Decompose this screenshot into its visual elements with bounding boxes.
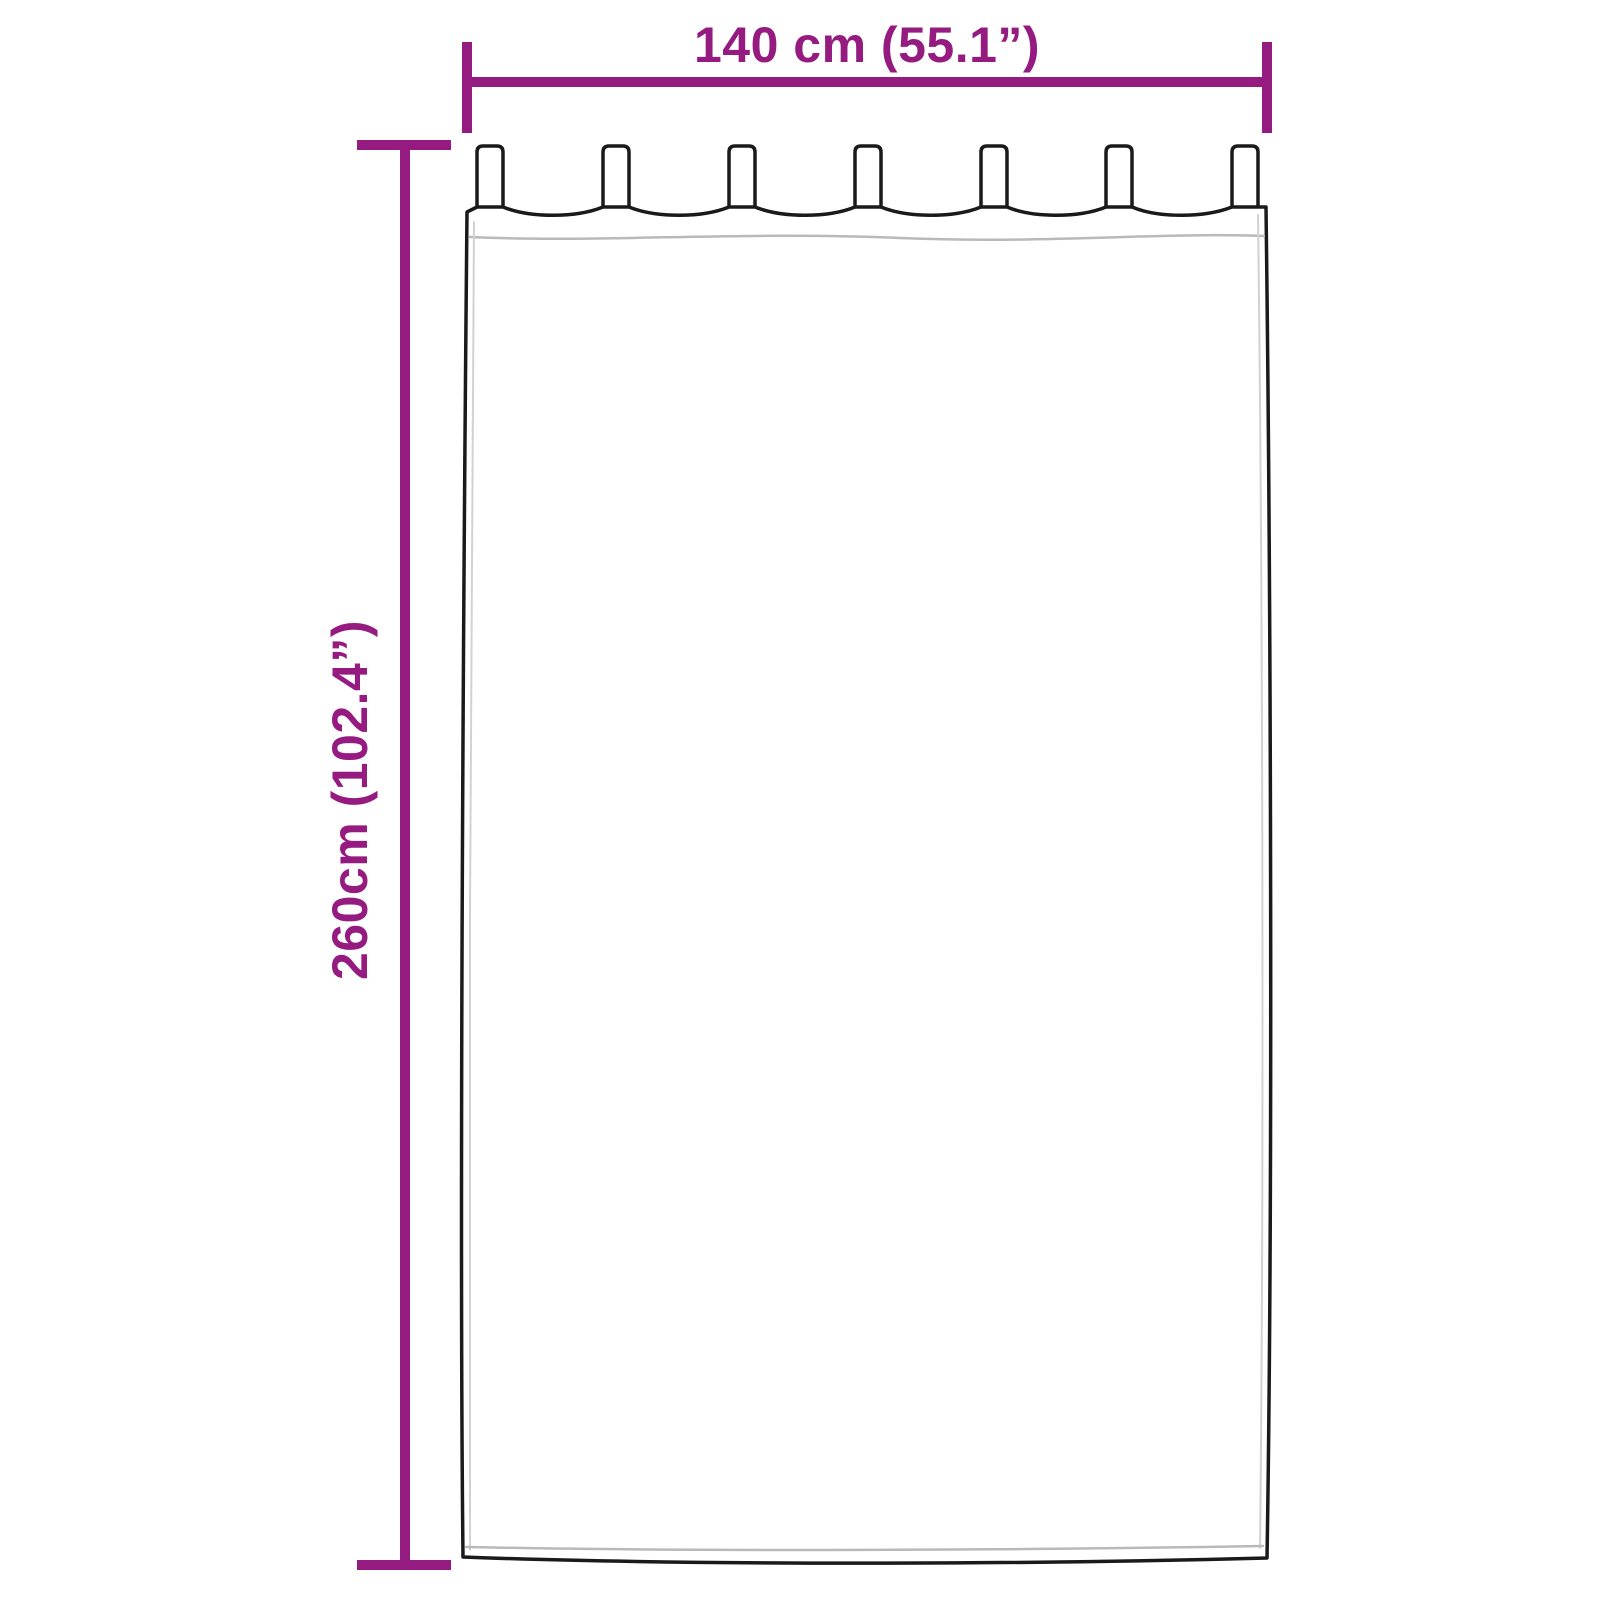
curtain-panel — [462, 207, 1271, 1563]
curtain-tabs — [477, 146, 1258, 215]
tab-loop-icon — [603, 146, 629, 215]
tab-loop-icon — [981, 146, 1007, 215]
curtain-dimension-diagram: 140 cm (55.1”) 260cm (102.4”) — [0, 0, 1600, 1600]
tab-loop-icon — [1106, 146, 1132, 215]
tab-loop-icon — [729, 146, 755, 215]
tab-loop-icon — [477, 146, 503, 215]
diagram-drawing — [0, 0, 1600, 1600]
tab-loop-icon — [855, 146, 881, 215]
width-dimension-label: 140 cm (55.1”) — [694, 20, 1040, 70]
height-dimension-label: 260cm (102.4”) — [325, 620, 375, 980]
tab-loop-icon — [1232, 146, 1258, 215]
